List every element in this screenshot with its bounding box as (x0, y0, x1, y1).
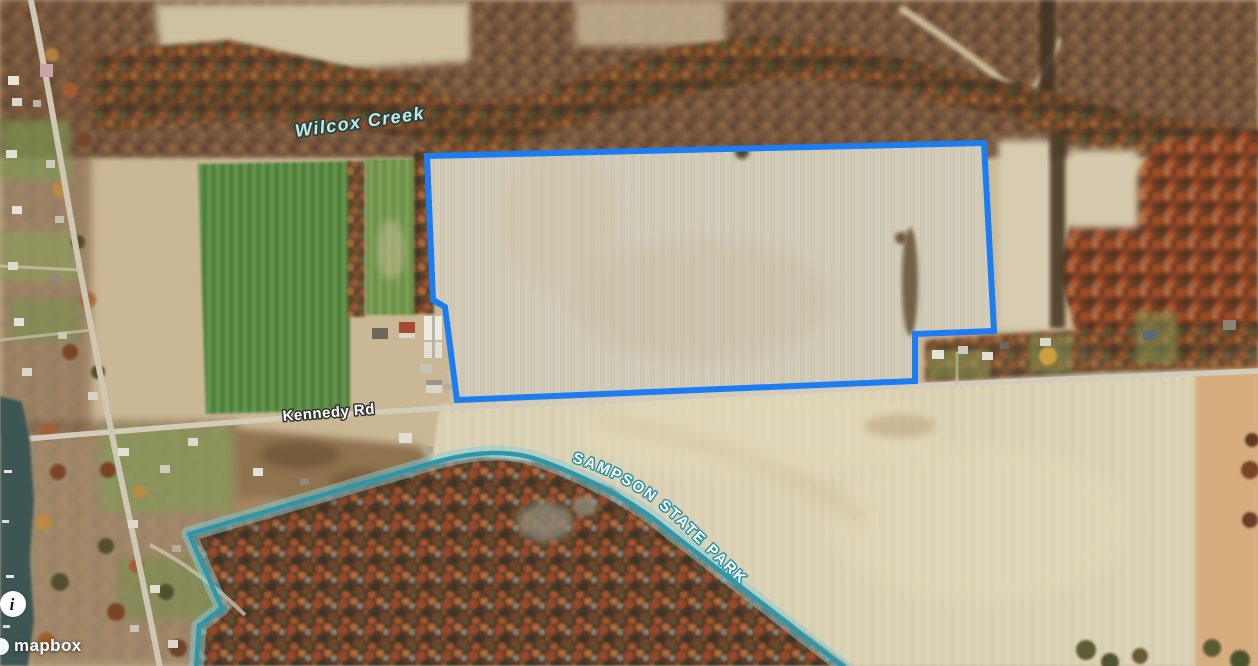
mapbox-attribution[interactable]: mapbox (0, 636, 82, 656)
attribution-info-button[interactable]: i (0, 591, 26, 617)
map-svg: Wilcox Creek Kennedy Rd SAMPSON STATE PA… (0, 0, 1258, 666)
parcel-outline[interactable] (427, 143, 994, 400)
lake (0, 396, 34, 666)
map-canvas[interactable]: Wilcox Creek Kennedy Rd SAMPSON STATE PA… (0, 0, 1258, 666)
mapbox-logo-icon (0, 638, 9, 655)
mapbox-wordmark[interactable]: mapbox (14, 636, 82, 656)
info-icon: i (10, 596, 15, 613)
